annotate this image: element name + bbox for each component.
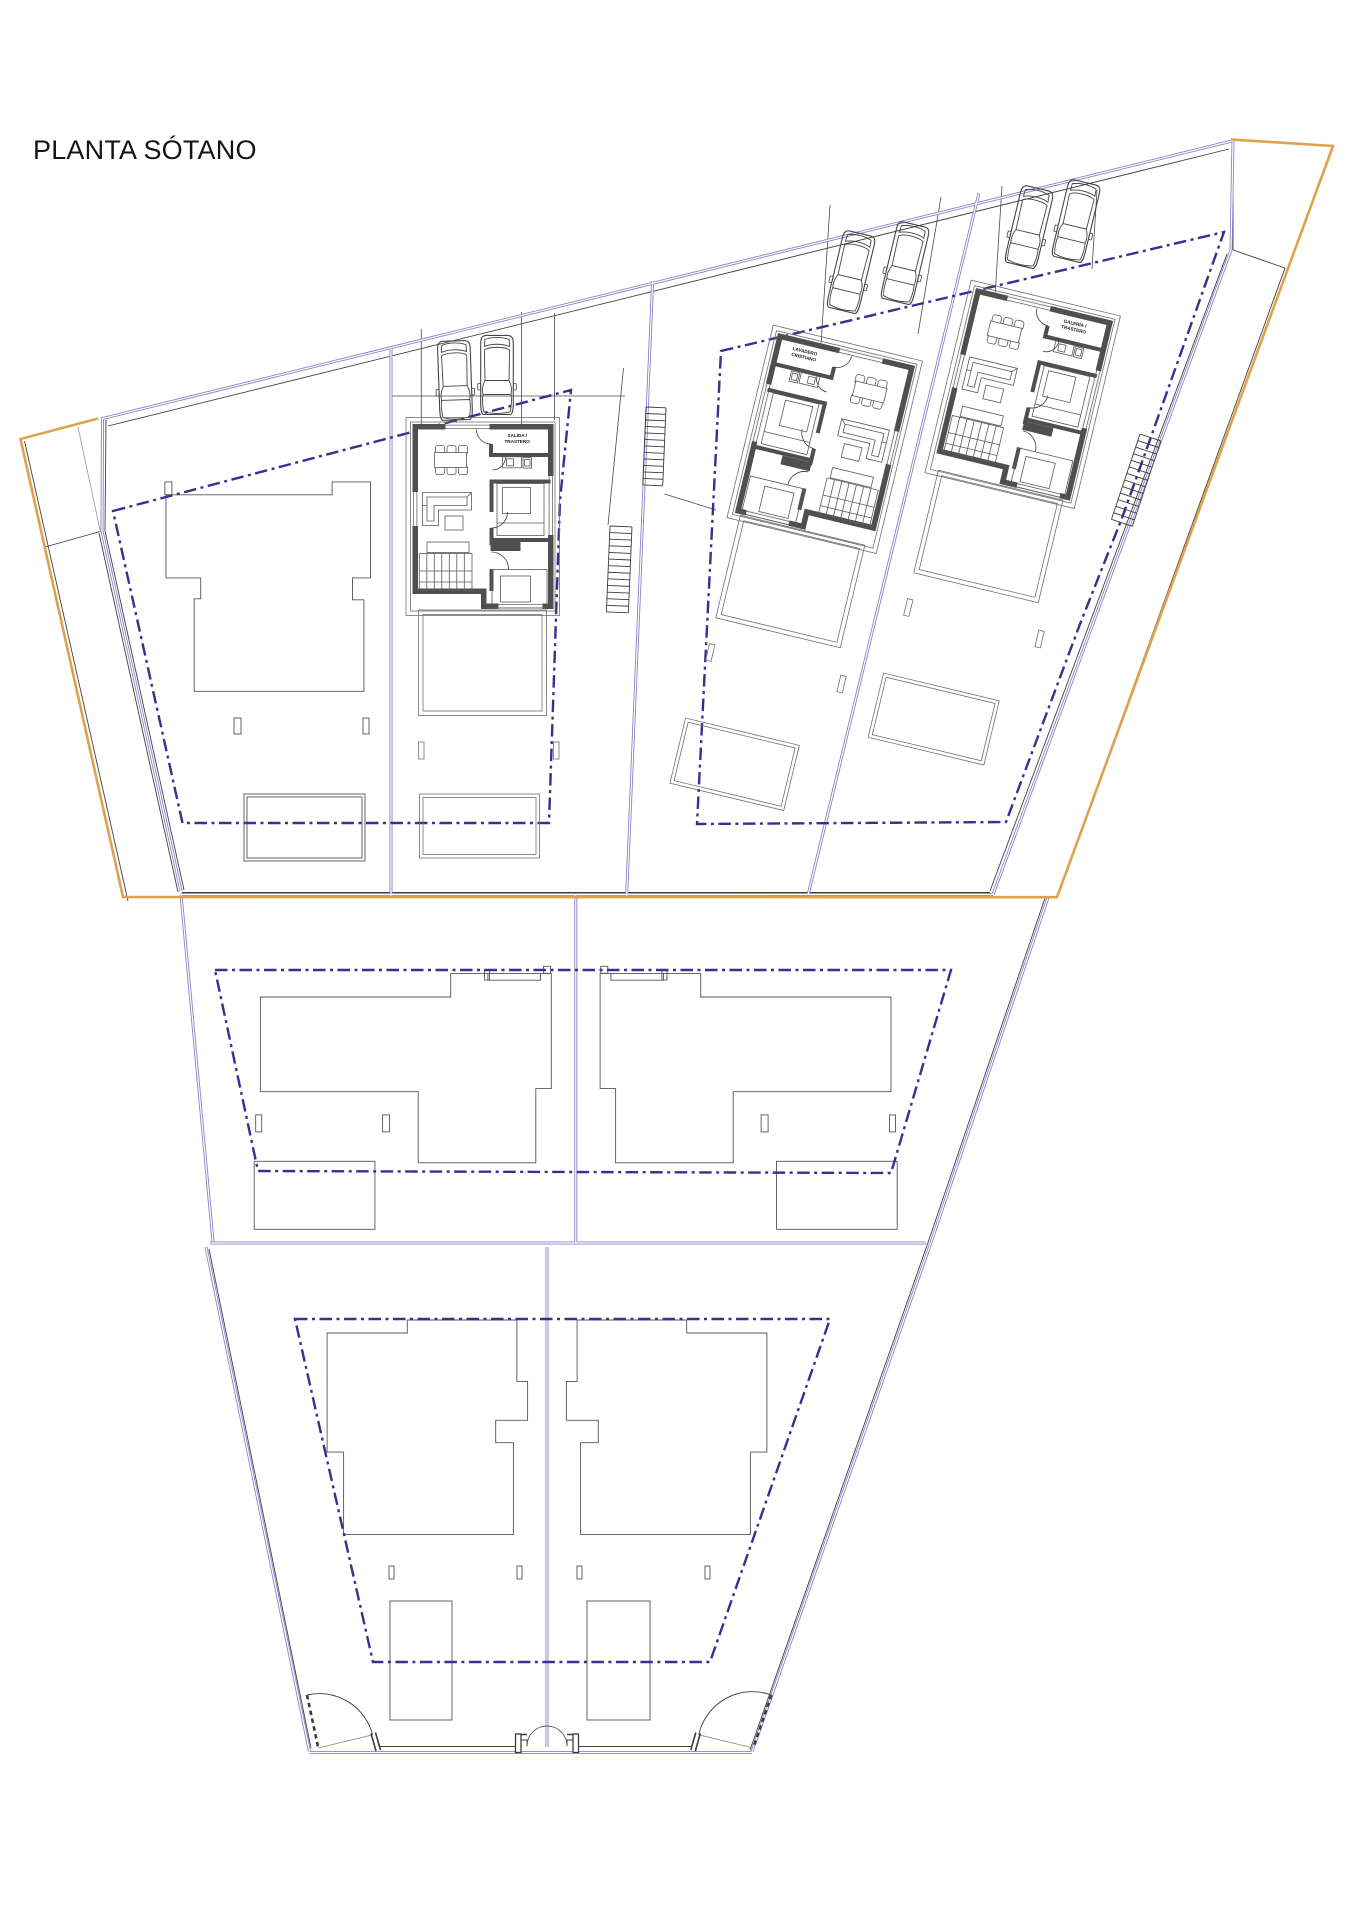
- svg-text:SALIDA /: SALIDA /: [508, 433, 528, 438]
- svg-text:PLANTA SÓTANO: PLANTA SÓTANO: [33, 134, 257, 165]
- svg-text:TRASTERO: TRASTERO: [505, 439, 531, 444]
